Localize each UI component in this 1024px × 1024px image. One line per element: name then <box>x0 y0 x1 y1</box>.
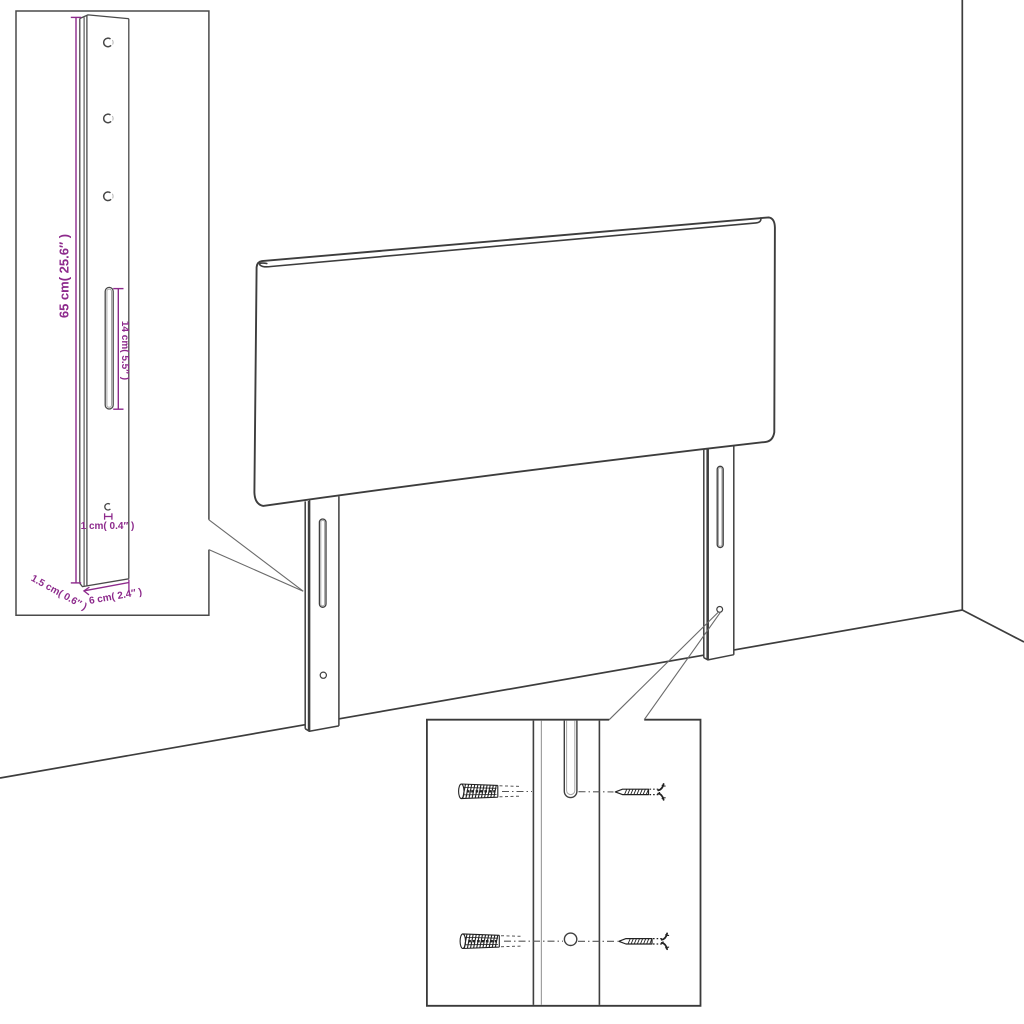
svg-text:65 cm( 25.6″ ): 65 cm( 25.6″ ) <box>56 234 71 318</box>
svg-text:1 cm( 0.4″ ): 1 cm( 0.4″ ) <box>81 521 135 532</box>
svg-text:14 cm( 5.5″ ): 14 cm( 5.5″ ) <box>119 321 130 380</box>
